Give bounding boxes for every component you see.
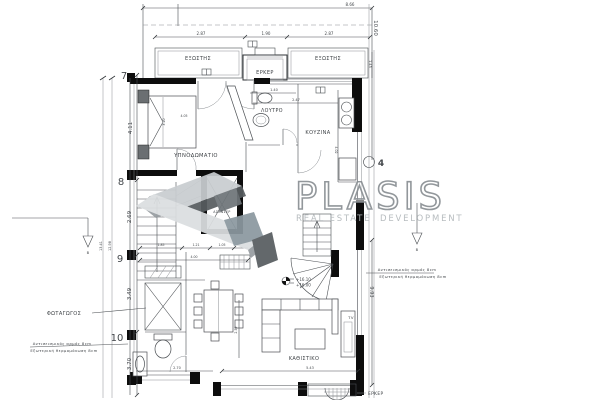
room-label-kitchen: ΚΟΥΖΙΝΑ [305, 130, 330, 136]
dim-top-center: 1.90 [262, 31, 271, 36]
annotation-seismic-right-1: Αντισεισμικός αρμός 8cm [378, 267, 437, 272]
dim-bottom-left: 2.70 [173, 366, 181, 370]
dim-left-8-9: 2.69 [127, 210, 133, 223]
dim-hall-total: 4.00 [190, 255, 197, 259]
plasis-tagline-left: REAL ESTATE [296, 214, 371, 224]
sofa [262, 299, 338, 352]
room-label-tv: TV [347, 315, 354, 320]
dim-left-9-10: 3.49 [127, 287, 133, 300]
bathroom-fixtures [248, 84, 298, 150]
dim-bedroom-depth: 3.20 [162, 118, 166, 125]
benchmark-symbol-left [12, 218, 93, 247]
grid-marker-10: 10 [111, 333, 124, 344]
dim-kitchen-depth: 4.02 [334, 146, 338, 153]
dim-left-total-outer: 13.41 [99, 241, 103, 251]
window-symbol-balcony [202, 69, 211, 75]
dim-left-total-inner: 12.98 [108, 241, 112, 251]
room-label-bathroom: ΛΟΥΤΡΟ [261, 108, 283, 114]
balcony-right [288, 48, 368, 78]
plasis-logo: PLASIS REAL ESTATE DEVELOPMENT [136, 172, 463, 268]
dim-right-upper-small: 1.45 [368, 60, 372, 68]
dim-top-right: 2.87 [325, 31, 334, 36]
plasis-tagline-right: DEVELOPMENT [380, 214, 463, 224]
bedroom-furniture [138, 86, 253, 172]
dim-left-10-end: 3.70 [127, 357, 133, 370]
annotation-seismic-left-1: Αντισεισμικός αρμός 8cm [33, 341, 92, 346]
grid-marker-4-label: 4 [378, 159, 384, 169]
room-label-elevator: ΑΣΑΝΣΕΡ [213, 210, 231, 214]
room-label-bay-top: ΕΡΚΕΡ [256, 70, 274, 76]
grid-marker-8: 8 [118, 177, 124, 188]
dim-left-7-8: 4.11 [128, 122, 134, 134]
annotation-seismic-left-2: Εξωτερική θερμομόνωση 8cm [30, 348, 97, 353]
room-label-bedroom: ΥΠΝΟΔΩΜΑΤΙΟ [173, 153, 218, 159]
level-upper: +16.10 [296, 277, 311, 282]
dim-top-left: 2.87 [197, 31, 206, 36]
kitchen-fixtures [338, 90, 356, 182]
dim-top-total: 8.66 [346, 2, 355, 7]
dim-stair-b: 1.21 [192, 243, 199, 247]
window-symbol-kitchen [316, 87, 325, 93]
grid-marker-9: 9 [117, 254, 123, 265]
room-label-bay-bottom: ΕΡΚΕΡ [368, 391, 383, 397]
dim-right-lower: 9.93 [368, 286, 374, 297]
dim-stair-a: 1.85 [157, 243, 164, 247]
level-lower: +16.00 [296, 283, 311, 288]
window-symbol-bay [248, 41, 257, 47]
hall-counter [220, 255, 250, 269]
level-marker [282, 277, 294, 285]
dim-stair-c: 1.05 [218, 243, 225, 247]
stair-winder [291, 214, 333, 301]
room-label-lightwell: ΦΩΤΑΓΩΓΟΣ [47, 311, 81, 317]
dim-bedroom-width: 4.05 [180, 114, 187, 118]
benchmark-label-left: B [87, 251, 90, 255]
balcony-left [155, 48, 242, 78]
annotation-seismic-right-2: Εξωτερική θερμομόνωση 8cm [379, 274, 446, 279]
dim-right-upper: 10.60 [372, 20, 378, 36]
dim-bottom-right: 5.43 [306, 366, 314, 370]
room-label-balcony-right: ΕΞΩΣΤΗΣ [315, 56, 341, 62]
room-label-living: ΚΑΘΙΣΤΙΚΟ [289, 356, 320, 362]
grid-marker-7: 7 [121, 71, 127, 82]
dim-kitchen-width: 2.47 [292, 98, 300, 102]
benchmark-label-right: B [416, 248, 419, 252]
floor-plan-sheet: 4 PLASIS REAL ESTATE DEVELOPMENT ΥΠΝΟΔΩΜ… [0, 0, 600, 400]
dim-bathroom-width: 1.40 [270, 88, 278, 92]
room-label-balcony-left: ΕΞΩΣΤΗΣ [185, 56, 211, 62]
dim-dining-depth: 2.59 [234, 326, 238, 333]
plasis-wordmark: PLASIS [295, 175, 446, 218]
